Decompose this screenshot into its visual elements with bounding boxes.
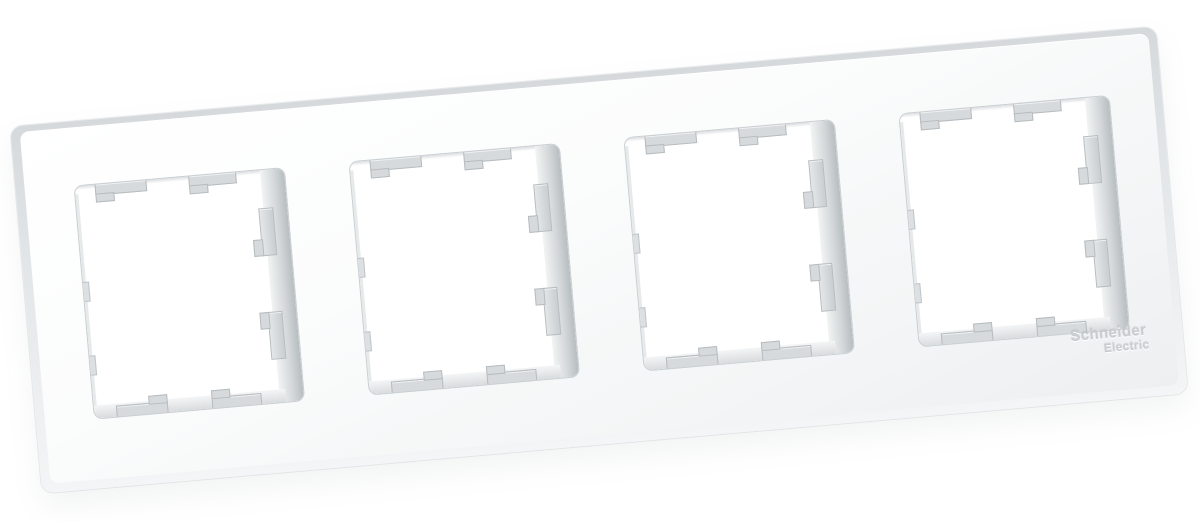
mounting-notch-left-upper bbox=[358, 257, 366, 277]
mounting-notch-left-lower bbox=[364, 331, 372, 351]
mounting-notch-left-lower bbox=[914, 283, 922, 303]
product-photo: Schneider Electric bbox=[0, 0, 1200, 521]
mounting-notch-left-upper bbox=[633, 233, 641, 253]
window-cutout-1 bbox=[74, 167, 306, 420]
window-cutout-3 bbox=[623, 119, 855, 372]
window-cutout-2 bbox=[348, 143, 580, 396]
mounting-notch-left-upper bbox=[83, 282, 91, 302]
window-cutout-4 bbox=[898, 95, 1130, 348]
mounting-notch-left-lower bbox=[89, 355, 97, 375]
wall-plate-frame: Schneider Electric bbox=[10, 27, 1188, 494]
mounting-notch-left-lower bbox=[639, 307, 647, 327]
mounting-notch-left-upper bbox=[908, 209, 916, 229]
